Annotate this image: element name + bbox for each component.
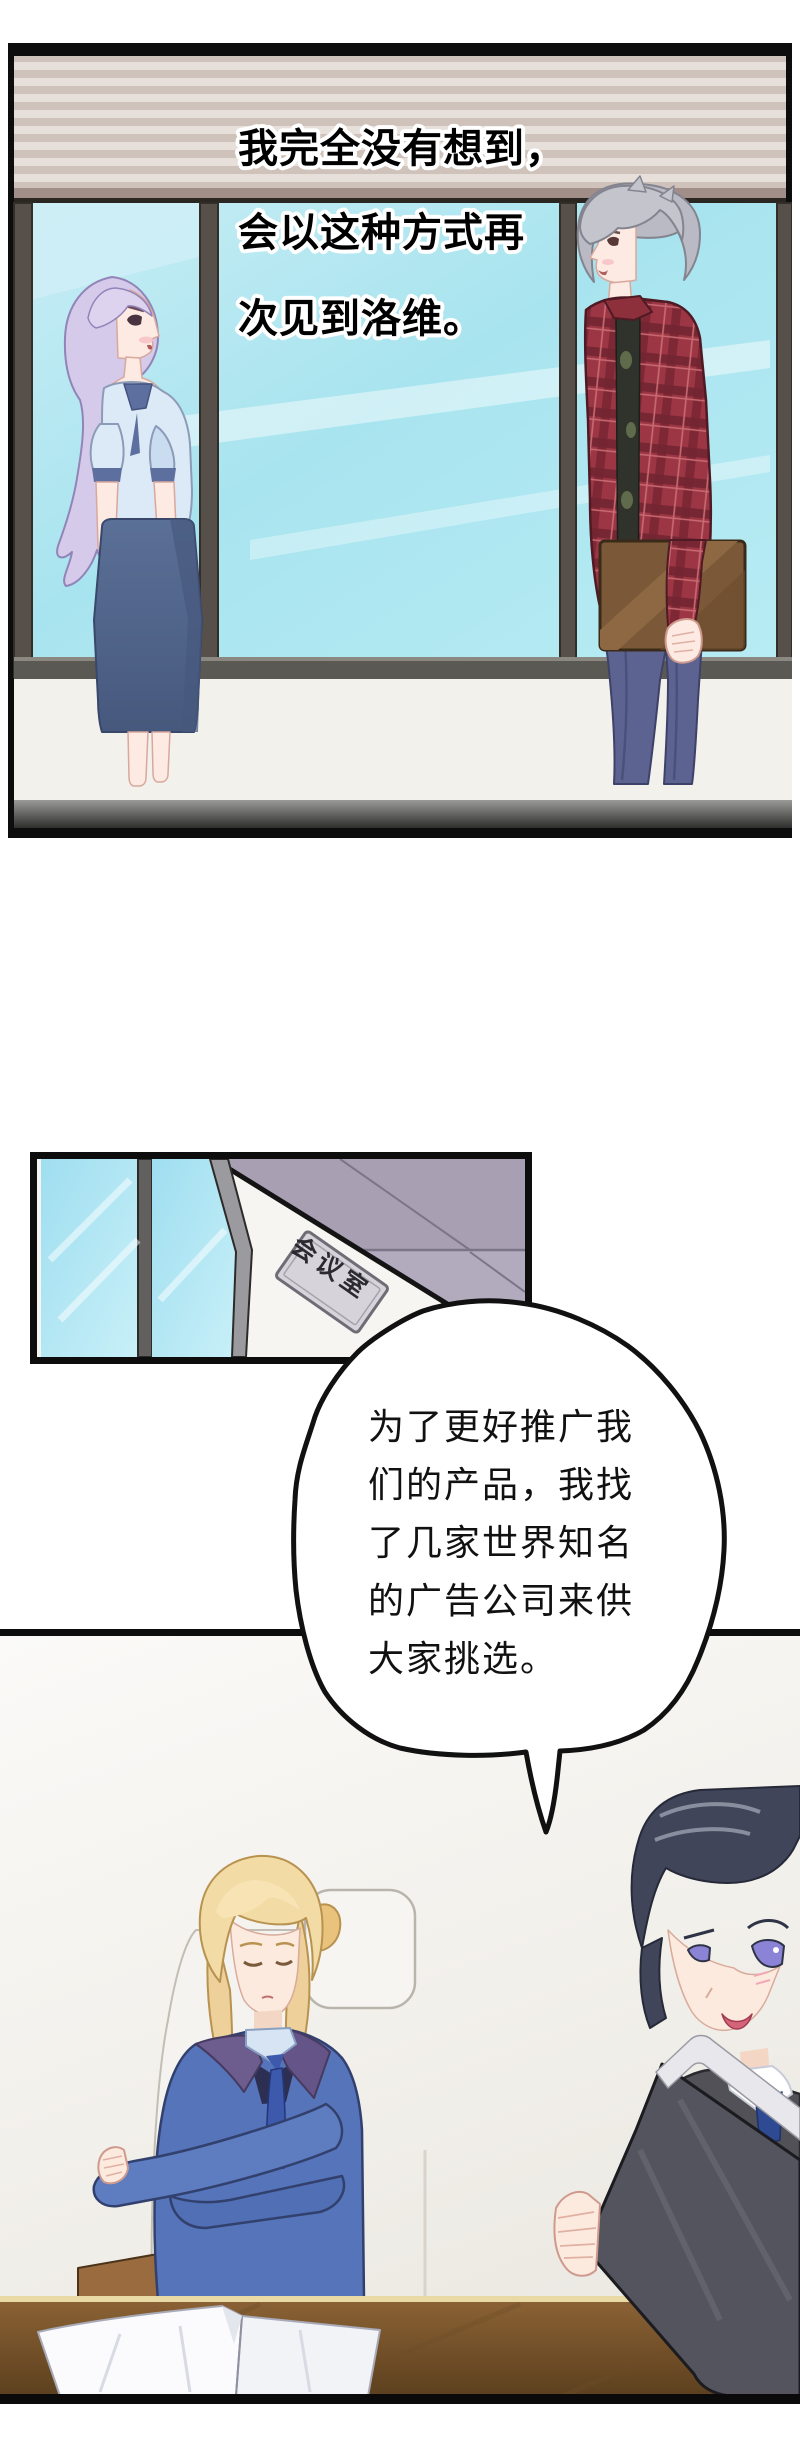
narration-line-2: 会以这种方式再: [238, 210, 525, 256]
panel-3-bottom-border: [0, 2394, 800, 2404]
dark-man-hand: [554, 2192, 600, 2276]
blonde-hand: [98, 2147, 128, 2183]
bubble-line-4: 的广告公司来供: [368, 1573, 668, 1631]
chair-wood-post-left: [78, 2254, 160, 2300]
bubble-line-2: 们的产品，我找: [368, 1457, 668, 1515]
bubble-line-3: 了几家世界知名: [368, 1515, 668, 1573]
dark-man-eye-right: [752, 1940, 784, 1967]
man-hand: [666, 619, 702, 663]
meeting-room-door: [41, 1159, 252, 1357]
panel-1-art: 我完全没有想到， 会以这种方式再 次见到洛维。: [8, 43, 792, 838]
narration-line-1: 我完全没有想到，: [238, 126, 566, 172]
blonde-man-figure: [94, 1856, 364, 2300]
woman-legs: [128, 732, 148, 786]
speech-bubble-text: 为了更好推广我 们的产品，我找 了几家世界知名 的广告公司来供 大家挑选。: [368, 1399, 668, 1689]
narration-line-3: 次见到洛维。: [238, 296, 484, 342]
bubble-line-1: 为了更好推广我: [368, 1399, 668, 1457]
comic-page: 我完全没有想到， 会以这种方式再 次见到洛维。: [0, 0, 800, 2459]
panel-1-window-scene: 我完全没有想到， 会以这种方式再 次见到洛维。: [8, 43, 792, 838]
floor: [14, 800, 792, 828]
bubble-line-5: 大家挑选。: [368, 1631, 668, 1689]
